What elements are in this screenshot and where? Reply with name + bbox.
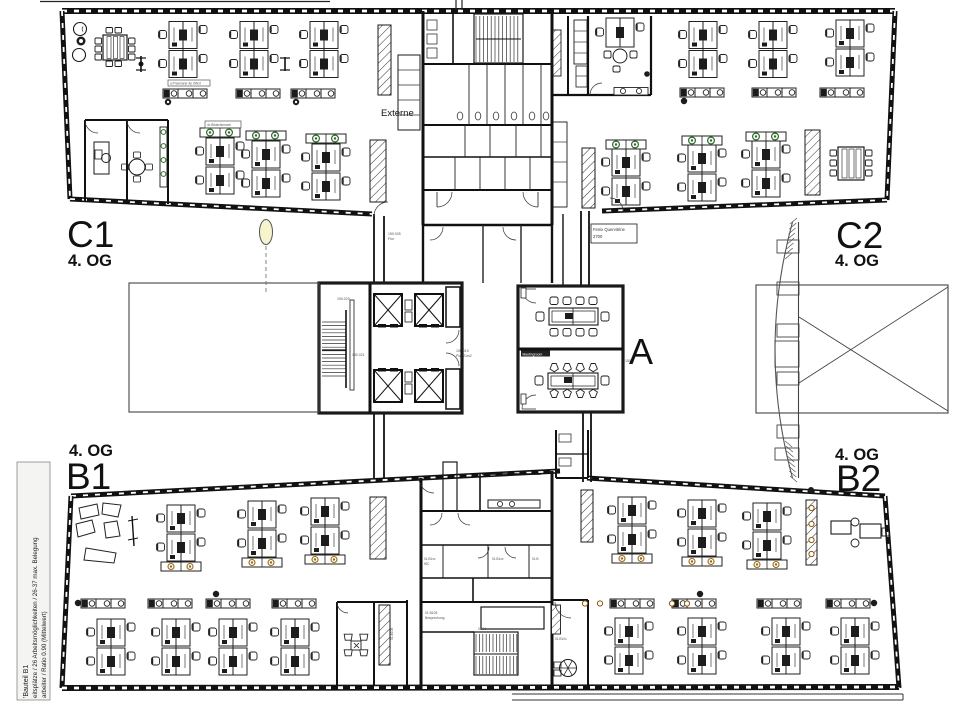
- svg-text:A: A: [629, 331, 653, 372]
- svg-text:4. OG: 4. OG: [835, 252, 879, 270]
- svg-text:01.B1xx: 01.B1xx: [424, 557, 436, 561]
- svg-text:eitsplätze / 26 Arbeitsmöglich: eitsplätze / 26 Arbeitsmöglichkeiten / 2…: [32, 537, 39, 698]
- svg-text:B2: B2: [836, 458, 881, 499]
- svg-text:arbeiter / Ratio 0.90 (Mittelw: arbeiter / Ratio 0.90 (Mittelwert): [41, 611, 48, 698]
- svg-text:C2: C2: [836, 215, 883, 256]
- svg-text:150.005: 150.005: [388, 232, 401, 236]
- svg-text:150.020: 150.020: [337, 297, 350, 301]
- svg-text:B1: B1: [66, 456, 111, 497]
- svg-text:01.B109: 01.B109: [390, 628, 394, 640]
- svg-text:WC: WC: [424, 562, 430, 566]
- svg-text:Fenix Quervitrine: Fenix Quervitrine: [593, 227, 626, 232]
- svg-text:Externe: Externe: [381, 108, 414, 119]
- svg-text:01.B105: 01.B105: [425, 611, 437, 615]
- svg-text:150.021: 150.021: [352, 353, 365, 357]
- svg-text:01.B: 01.B: [532, 557, 539, 561]
- svg-text:4x Bildschirmarb.: 4x Bildschirmarb.: [207, 123, 232, 127]
- svg-text:01.B10x: 01.B10x: [555, 637, 567, 641]
- svg-text:C1: C1: [67, 214, 114, 255]
- svg-text:01.B1: 01.B1: [478, 627, 487, 631]
- svg-text:Meetingroom: Meetingroom: [523, 352, 543, 356]
- svg-text:4. OG: 4. OG: [68, 252, 112, 270]
- svg-text:a.Praxmarer 4p Offert: a.Praxmarer 4p Offert: [170, 82, 201, 86]
- svg-text:Flur: Flur: [388, 237, 395, 241]
- svg-text:'Bauteil B1: 'Bauteil B1: [23, 665, 30, 698]
- svg-text:01.B1xx: 01.B1xx: [492, 557, 504, 561]
- svg-text:2700: 2700: [593, 234, 603, 239]
- svg-text:Flur 21m2: Flur 21m2: [456, 354, 472, 358]
- svg-text:Besprechung: Besprechung: [425, 616, 445, 620]
